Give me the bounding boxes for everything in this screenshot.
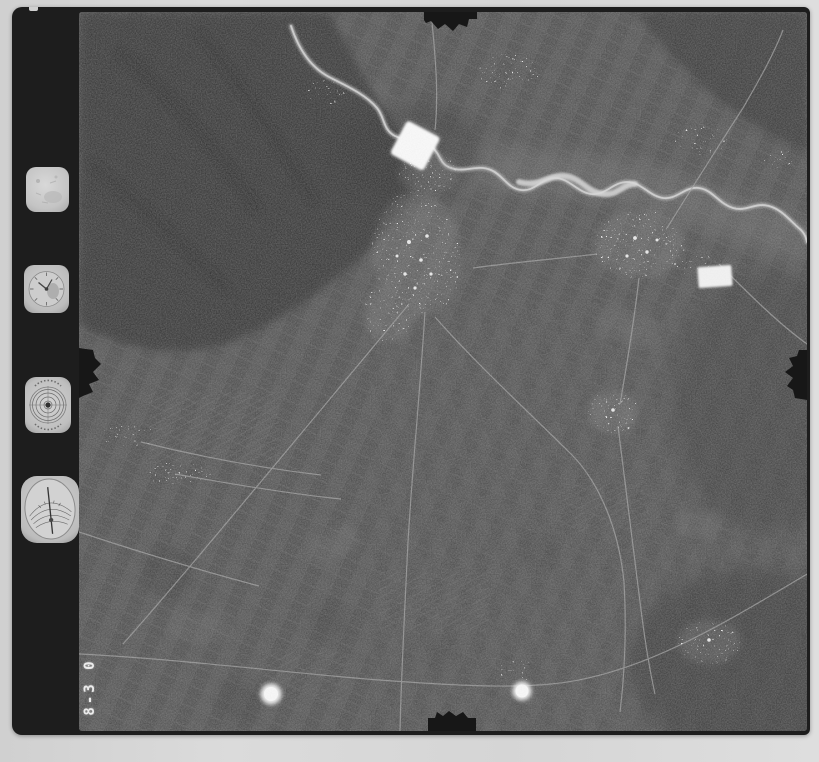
film-grain <box>79 12 807 731</box>
data-window-marks <box>26 167 69 212</box>
frame-counter: 8-3 0 <box>82 651 102 723</box>
photo-area <box>79 12 807 731</box>
altimeter-gauge-face <box>21 476 79 543</box>
altimeter-gauge-icon <box>21 476 79 543</box>
terrain-image <box>79 12 807 731</box>
film-margin-strip <box>12 7 79 735</box>
bubble-level-icon <box>25 377 71 433</box>
watch-dial-face <box>24 265 69 313</box>
data-window-icon <box>26 167 69 212</box>
bubble-level-face <box>25 377 71 433</box>
watch-dial-icon <box>24 265 69 313</box>
aerial-photo-print: 8-3 0 <box>0 0 819 762</box>
film-frame: 8-3 0 <box>12 7 810 735</box>
